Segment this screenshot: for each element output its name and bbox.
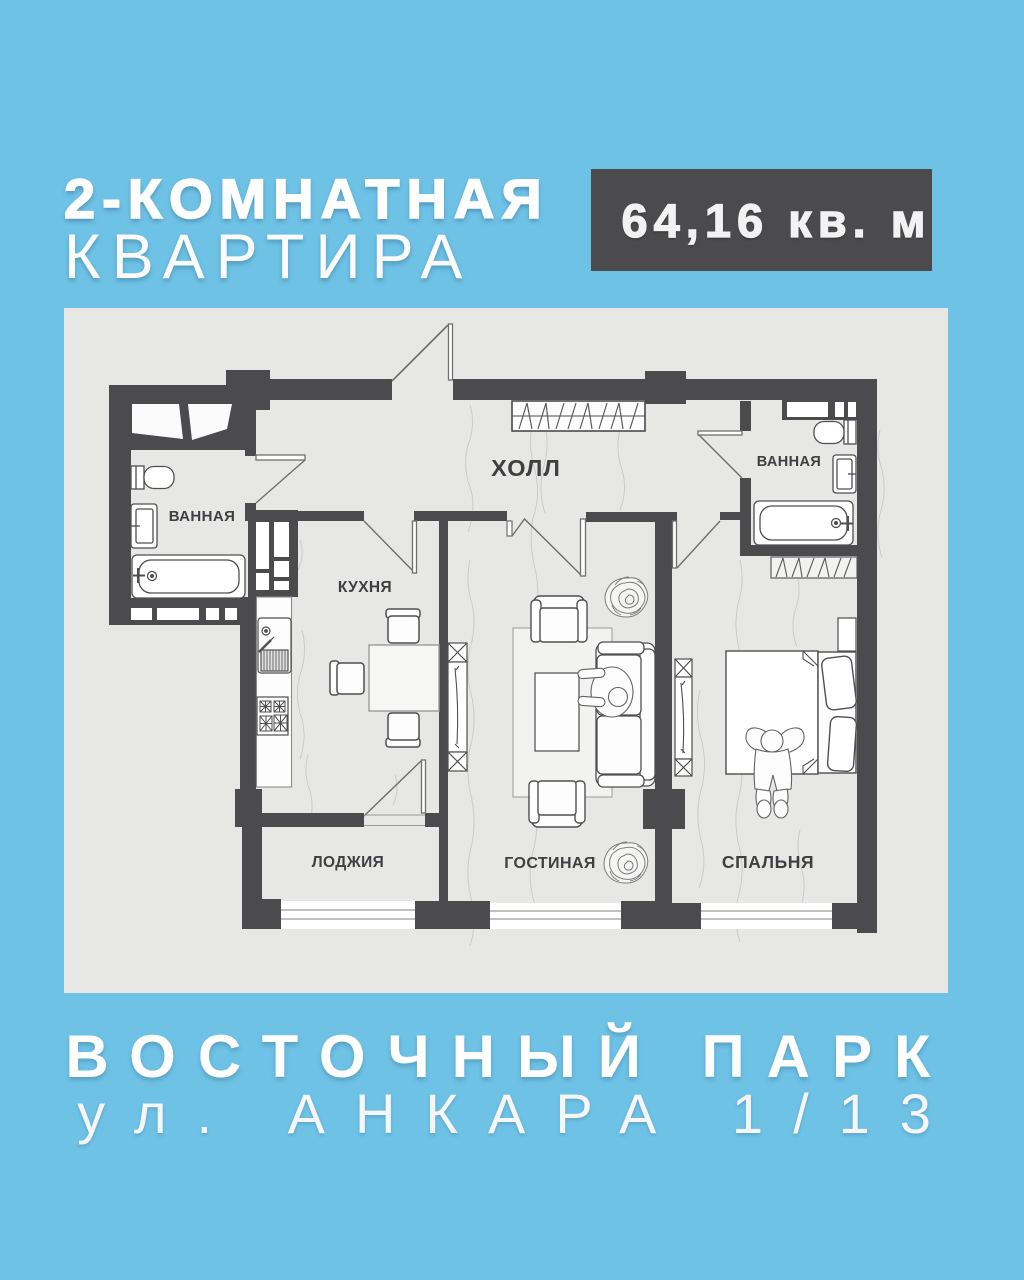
svg-text:ЛОДЖИЯ: ЛОДЖИЯ xyxy=(312,854,384,871)
svg-text:ХОЛЛ: ХОЛЛ xyxy=(491,455,561,481)
svg-text:ВАННАЯ: ВАННАЯ xyxy=(169,508,236,525)
svg-text:КУХНЯ: КУХНЯ xyxy=(338,579,392,596)
svg-text:СПАЛЬНЯ: СПАЛЬНЯ xyxy=(722,852,814,872)
svg-text:ГОСТИНАЯ: ГОСТИНАЯ xyxy=(504,855,596,872)
svg-text:ВАННАЯ: ВАННАЯ xyxy=(757,454,821,470)
